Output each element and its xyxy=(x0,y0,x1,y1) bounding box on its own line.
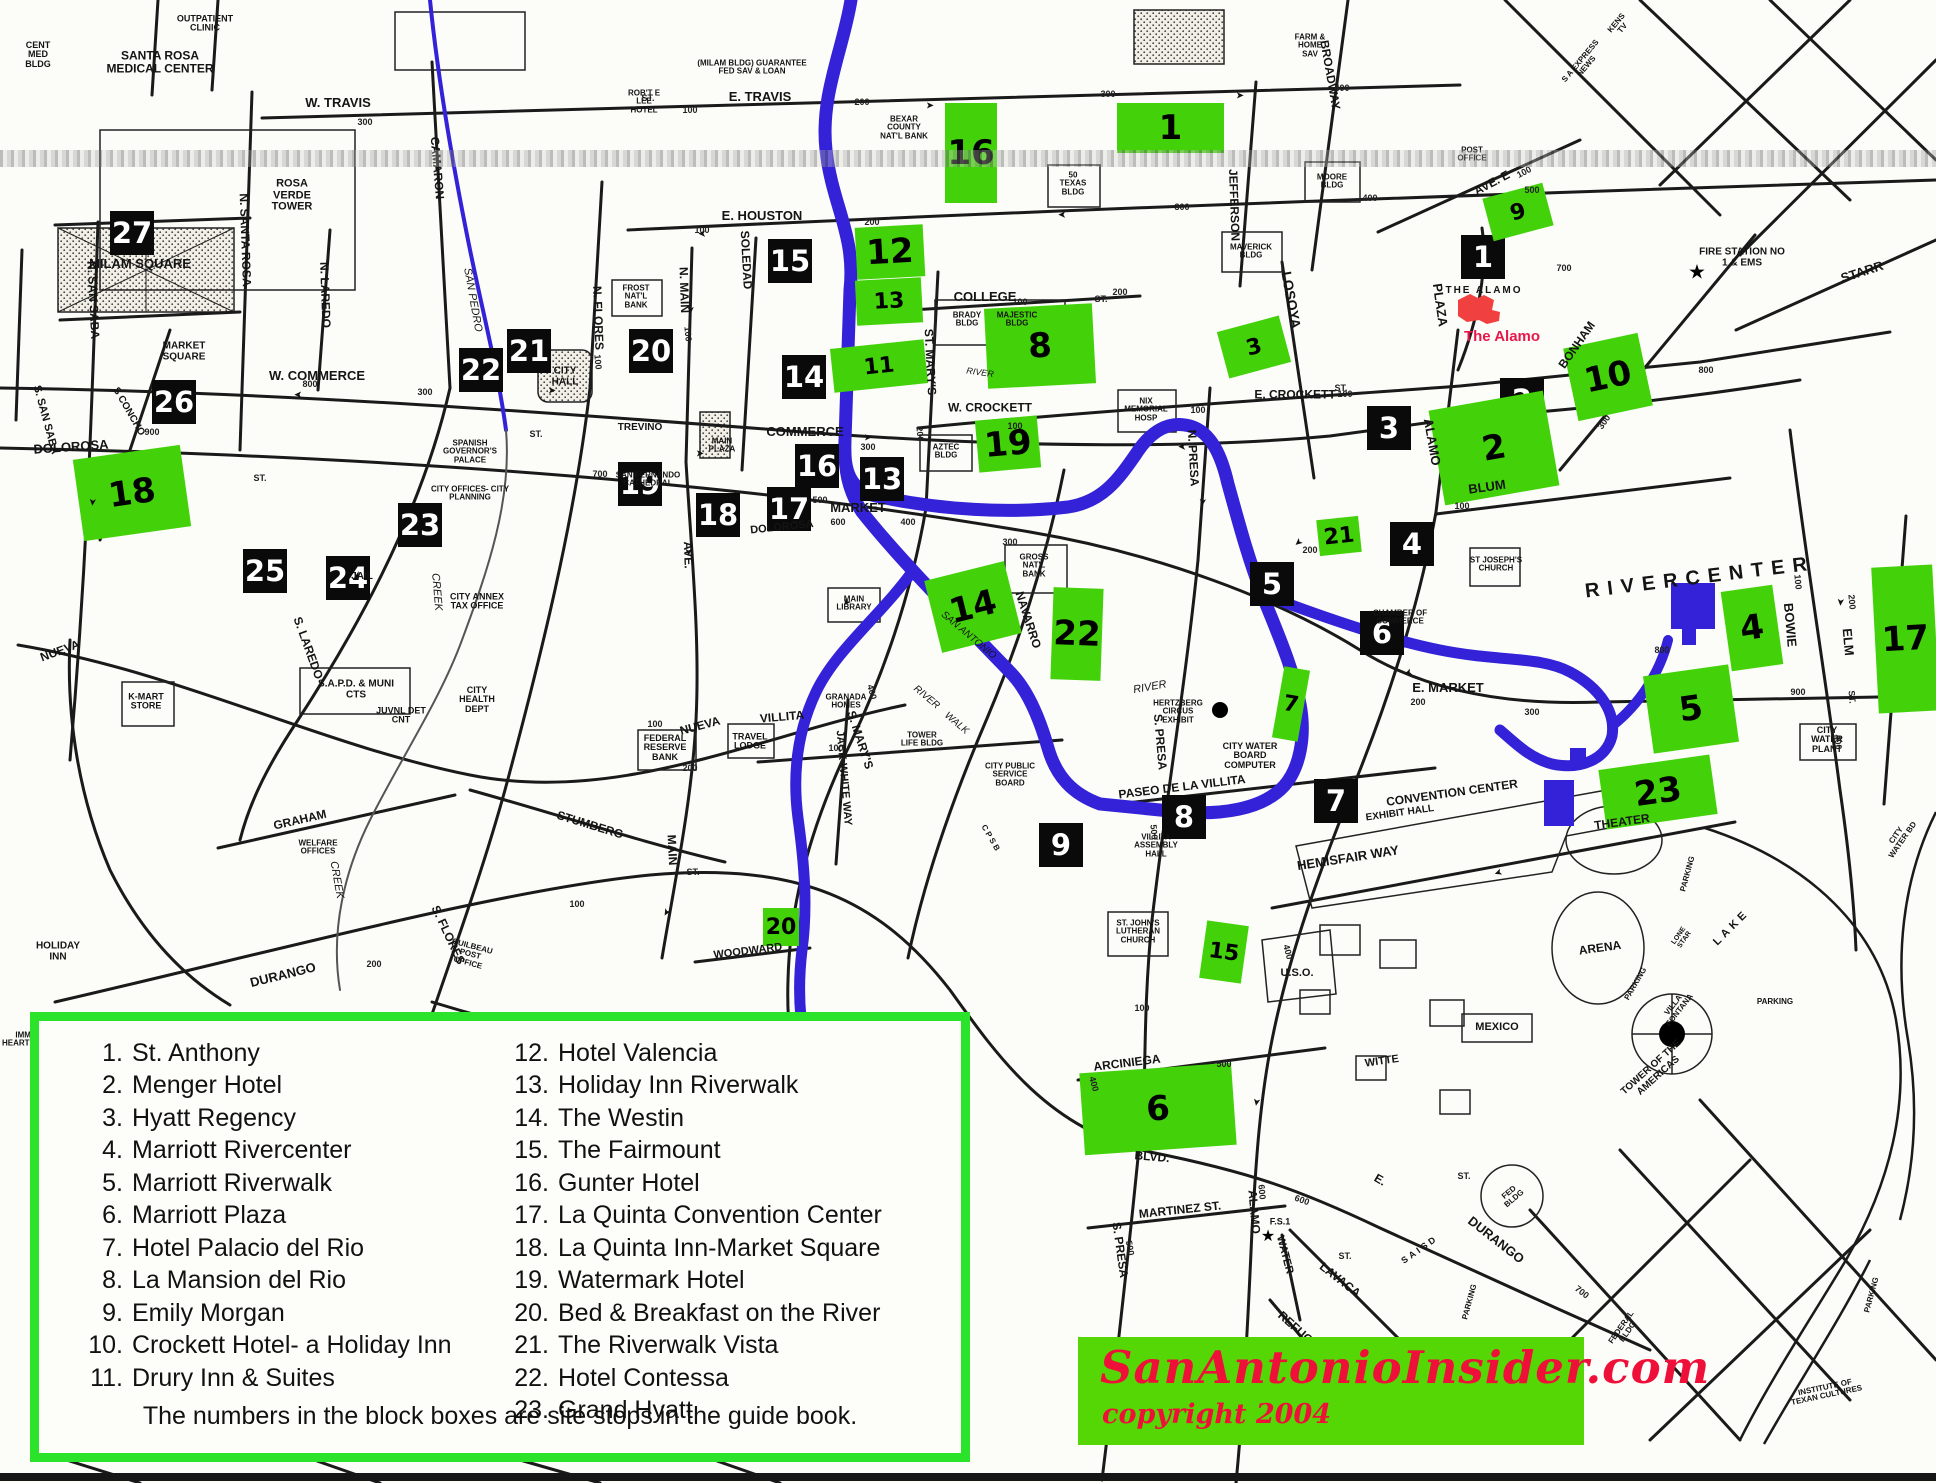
hotel-marker-8: 8 xyxy=(984,303,1096,389)
hotel-marker-7: 7 xyxy=(1272,666,1310,741)
hotel-marker-9: 9 xyxy=(1482,183,1553,242)
site-stop-marker-5: 5 xyxy=(1250,562,1294,606)
legend-item-label: Hyatt Regency xyxy=(132,1104,296,1133)
legend-note: The numbers in the block boxes are site … xyxy=(39,1402,961,1431)
map-canvas: 2726252423222120191817161514139875643211… xyxy=(0,0,1936,1483)
legend-box: 1.St. Anthony2.Menger Hotel3.Hyatt Regen… xyxy=(30,1012,970,1462)
hotel-marker-15: 15 xyxy=(1199,920,1249,983)
legend-item-number: 17. xyxy=(501,1201,558,1230)
hotel-marker-3: 3 xyxy=(1217,316,1291,379)
legend-item-label: The Westin xyxy=(558,1104,684,1133)
legend-item-number: 5. xyxy=(75,1169,132,1198)
legend-item-number: 16. xyxy=(501,1169,558,1198)
site-stop-marker-22: 22 xyxy=(459,348,503,392)
site-stop-marker-3: 3 xyxy=(1367,406,1411,450)
legend-item-label: La Quinta Convention Center xyxy=(558,1201,882,1230)
legend-item: 19.Watermark Hotel xyxy=(501,1265,882,1298)
legend-item-number: 4. xyxy=(75,1136,132,1165)
hotel-marker-1: 1 xyxy=(1117,103,1224,153)
legend-item: 18.La Quinta Inn-Market Square xyxy=(501,1232,882,1265)
legend-item: 10.Crockett Hotel- a Holiday Inn xyxy=(75,1330,452,1363)
legend-item-label: La Mansion del Rio xyxy=(132,1266,346,1295)
legend-item: 6.Marriott Plaza xyxy=(75,1200,452,1233)
legend-item-number: 15. xyxy=(501,1136,558,1165)
legend-item-label: Menger Hotel xyxy=(132,1071,282,1100)
site-stop-marker-23: 23 xyxy=(398,503,442,547)
hotel-marker-12: 12 xyxy=(855,224,926,279)
legend-column-2: 12.Hotel Valencia13.Holiday Inn Riverwal… xyxy=(501,1037,882,1427)
site-stop-marker-20: 20 xyxy=(629,329,673,373)
site-banner: SanAntonioInsider.com copyright 2004 xyxy=(1078,1337,1584,1445)
legend-item: 12.Hotel Valencia xyxy=(501,1037,882,1070)
site-stop-marker-18: 18 xyxy=(696,493,740,537)
legend-item-number: 6. xyxy=(75,1201,132,1230)
site-stop-marker-16: 16 xyxy=(795,444,839,488)
hotel-marker-5: 5 xyxy=(1643,664,1739,753)
hotel-marker-19: 19 xyxy=(975,415,1041,472)
legend-item-number: 19. xyxy=(501,1266,558,1295)
legend-item: 9.Emily Morgan xyxy=(75,1297,452,1330)
legend-item-number: 3. xyxy=(75,1104,132,1133)
legend-item-number: 8. xyxy=(75,1266,132,1295)
legend-item: 2.Menger Hotel xyxy=(75,1070,452,1103)
legend-column-1: 1.St. Anthony2.Menger Hotel3.Hyatt Regen… xyxy=(75,1037,452,1395)
legend-item-label: Gunter Hotel xyxy=(558,1169,700,1198)
site-stop-marker-21: 21 xyxy=(507,329,551,373)
scan-artifact-stripe xyxy=(0,150,1936,167)
site-name: SanAntonioInsider.com xyxy=(1100,1341,1710,1394)
site-stop-marker-27: 27 xyxy=(110,211,154,255)
legend-item-number: 22. xyxy=(501,1364,558,1393)
legend-item-number: 18. xyxy=(501,1234,558,1263)
legend-item: 8.La Mansion del Rio xyxy=(75,1265,452,1298)
legend-item-number: 7. xyxy=(75,1234,132,1263)
legend-item-label: Watermark Hotel xyxy=(558,1266,745,1295)
site-stop-marker-13: 13 xyxy=(860,457,904,501)
site-stop-marker-14: 14 xyxy=(782,355,826,399)
hotel-marker-6: 6 xyxy=(1079,1063,1236,1155)
copyright: copyright 2004 xyxy=(1102,1399,1331,1430)
hotel-marker-18: 18 xyxy=(73,445,191,541)
legend-item-number: 2. xyxy=(75,1071,132,1100)
legend-item-number: 12. xyxy=(501,1039,558,1068)
legend-item-label: Marriott Rivercenter xyxy=(132,1136,352,1165)
hotel-marker-20: 20 xyxy=(763,908,799,946)
site-stop-marker-8: 8 xyxy=(1162,795,1206,839)
hotel-marker-23: 23 xyxy=(1598,754,1717,829)
legend-item-number: 10. xyxy=(75,1331,132,1360)
legend-item-number: 21. xyxy=(501,1331,558,1360)
legend-item: 11.Drury Inn & Suites xyxy=(75,1362,452,1395)
hotel-marker-17: 17 xyxy=(1871,565,1936,714)
legend-item: 5.Marriott Riverwalk xyxy=(75,1167,452,1200)
site-stop-marker-4: 4 xyxy=(1390,522,1434,566)
hotel-marker-10: 10 xyxy=(1563,333,1653,421)
site-stop-marker-17: 17 xyxy=(767,487,811,531)
legend-item: 15.The Fairmount xyxy=(501,1135,882,1168)
legend-item-label: Drury Inn & Suites xyxy=(132,1364,335,1393)
legend-item-number: 9. xyxy=(75,1299,132,1328)
legend-item-number: 13. xyxy=(501,1071,558,1100)
legend-item-label: The Riverwalk Vista xyxy=(558,1331,778,1360)
hotel-marker-14: 14 xyxy=(924,561,1021,653)
hotel-marker-11: 11 xyxy=(830,339,928,393)
legend-item-number: 1. xyxy=(75,1039,132,1068)
legend-item-label: Marriott Plaza xyxy=(132,1201,286,1230)
legend-item-number: 14. xyxy=(501,1104,558,1133)
site-stop-marker-19: 19 xyxy=(618,462,662,506)
legend-item-label: La Quinta Inn-Market Square xyxy=(558,1234,880,1263)
site-stop-marker-26: 26 xyxy=(152,380,196,424)
hotel-marker-2: 2 xyxy=(1429,391,1560,506)
legend-item: 14.The Westin xyxy=(501,1102,882,1135)
legend-item: 4.Marriott Rivercenter xyxy=(75,1135,452,1168)
legend-item-label: Emily Morgan xyxy=(132,1299,285,1328)
legend-item-number: 20. xyxy=(501,1299,558,1328)
site-stop-marker-25: 25 xyxy=(243,549,287,593)
legend-item: 13.Holiday Inn Riverwalk xyxy=(501,1070,882,1103)
hotel-marker-21: 21 xyxy=(1316,516,1362,556)
legend-item: 1.St. Anthony xyxy=(75,1037,452,1070)
legend-item-label: Crockett Hotel- a Holiday Inn xyxy=(132,1331,452,1360)
site-stop-marker-9: 9 xyxy=(1039,823,1083,867)
hotel-marker-4: 4 xyxy=(1721,585,1784,671)
legend-item-label: Holiday Inn Riverwalk xyxy=(558,1071,798,1100)
site-stop-marker-1: 1 xyxy=(1461,235,1505,279)
site-stop-marker-24: 24 xyxy=(326,556,370,600)
site-stop-marker-15: 15 xyxy=(768,239,812,283)
hotel-marker-13: 13 xyxy=(855,277,923,325)
legend-item-number: 11. xyxy=(75,1364,132,1393)
legend-item-label: Hotel Palacio del Rio xyxy=(132,1234,364,1263)
legend-item: 22.Hotel Contessa xyxy=(501,1362,882,1395)
legend-item-label: Bed & Breakfast on the River xyxy=(558,1299,880,1328)
legend-item: 21.The Riverwalk Vista xyxy=(501,1330,882,1363)
legend-item: 17.La Quinta Convention Center xyxy=(501,1200,882,1233)
site-stop-marker-6: 6 xyxy=(1360,611,1404,655)
site-stop-marker-7: 7 xyxy=(1314,779,1358,823)
bottom-border xyxy=(0,1473,1936,1481)
legend-item-label: The Fairmount xyxy=(558,1136,721,1165)
legend-item-label: St. Anthony xyxy=(132,1039,260,1068)
legend-item: 16.Gunter Hotel xyxy=(501,1167,882,1200)
legend-item-label: Marriott Riverwalk xyxy=(132,1169,332,1198)
hotel-marker-22: 22 xyxy=(1050,587,1103,681)
legend-item: 7.Hotel Palacio del Rio xyxy=(75,1232,452,1265)
legend-item-label: Hotel Contessa xyxy=(558,1364,729,1393)
legend-item: 20.Bed & Breakfast on the River xyxy=(501,1297,882,1330)
legend-item: 3.Hyatt Regency xyxy=(75,1102,452,1135)
legend-item-label: Hotel Valencia xyxy=(558,1039,717,1068)
